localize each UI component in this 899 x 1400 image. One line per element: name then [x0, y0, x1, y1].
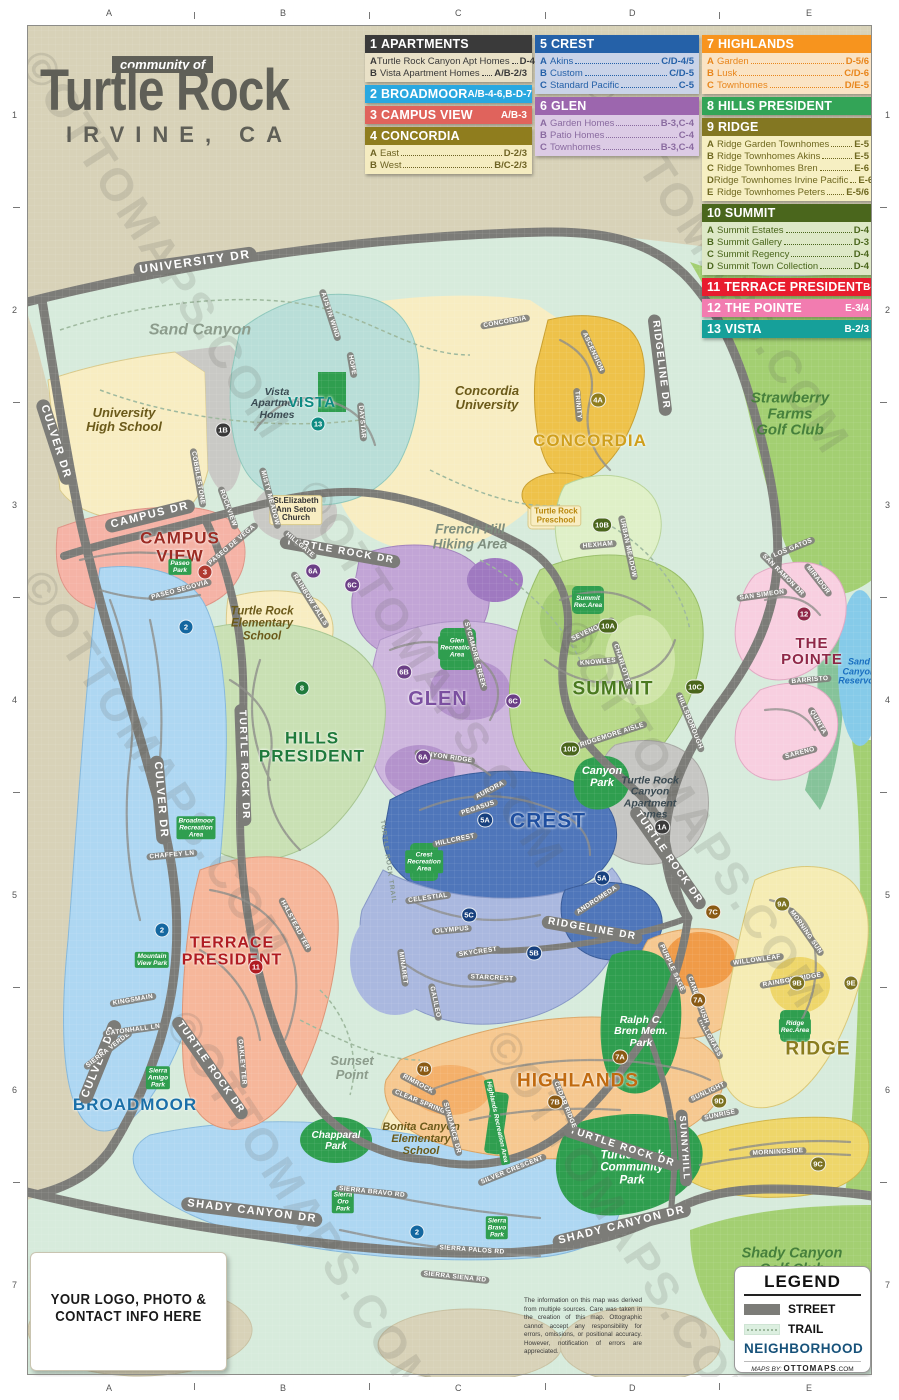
legend-item-patio-homes: BPatio HomesC-4 — [540, 130, 694, 141]
legend-group-name: CREST — [551, 37, 694, 51]
legend-item-key: C — [707, 249, 717, 260]
legend-group-name: VISTA — [725, 322, 845, 336]
legend-group-number: 4 — [370, 129, 377, 143]
legend-item-key: B — [707, 237, 717, 248]
legend-item-east: AEastD-2/3 — [370, 148, 527, 159]
legend-item-label: Ridge Townhomes Irvine Pacific — [714, 175, 848, 186]
legend-item-label: Ridge Townhomes Peters — [717, 187, 825, 198]
legend-item-leader — [827, 187, 844, 195]
grid-number-5-left: 5 — [12, 890, 17, 900]
legend-item-garden-homes: AGarden HomesB-3,C-4 — [540, 118, 694, 129]
legend-item-leader — [616, 118, 658, 126]
legend-item-leader — [482, 68, 493, 76]
legend-item-label: Garden — [717, 56, 749, 67]
legend-item-label: Standard Pacific — [550, 80, 619, 91]
grid-tick-top-1 — [194, 12, 195, 19]
legend-item-label: Turtle Rock Canyon Apt Homes — [377, 56, 510, 67]
legend-group-number: 6 — [540, 99, 547, 113]
legend-group-campus-view: 3CAMPUS VIEWA/B-3 — [365, 106, 532, 124]
legend-item-summit-estates: ASummit EstatesD-4 — [707, 225, 869, 236]
grid-tick-top-2 — [369, 12, 370, 19]
legend-item-ridge-townhomes-akins: BRidge Townhomes AkinsE-5 — [707, 151, 869, 162]
legend-group-name: SUMMIT — [725, 206, 869, 220]
legend-item-key: A — [370, 148, 380, 159]
legend-item-label: Townhomes — [550, 142, 601, 153]
legend-item-grid-ref: C/D-4/5 — [661, 56, 694, 67]
grid-tick-left-4 — [13, 792, 20, 793]
grid-number-3-right: 3 — [885, 500, 890, 510]
legend-item-lusk: BLuskC/D-6 — [707, 68, 869, 79]
legend-item-west: BWestB/C-2/3 — [370, 160, 527, 171]
legend-group-items-glen: AGarden HomesB-3,C-4BPatio HomesC-4CTown… — [535, 115, 699, 156]
legend-group-number: 2 — [370, 87, 377, 101]
legend-item-leader — [822, 151, 852, 159]
grid-number-1-left: 1 — [12, 110, 17, 120]
legend-group-broadmoor: 2BROADMOORA/B-4-6,B-D-7 — [365, 85, 532, 103]
legend-group-header-hills-president: 8HILLS PRESIDENT — [702, 97, 874, 115]
legend-group-name: CONCORDIA — [381, 129, 527, 143]
grid-tick-right-6 — [880, 1182, 887, 1183]
legend-item-leader — [575, 56, 659, 64]
legend-item-grid-ref: D-5/6 — [846, 56, 869, 67]
legend-item-leader — [603, 142, 659, 150]
legend-item-leader — [512, 56, 518, 64]
credit-name: OTTOMAPS — [784, 1364, 837, 1373]
legend-item-leader — [606, 130, 676, 138]
legend-item-grid-ref: C-4 — [679, 130, 694, 141]
grid-number-5-right: 5 — [885, 890, 890, 900]
credit-suffix: .COM — [837, 1366, 854, 1373]
legend-item-label: Summit Gallery — [717, 237, 782, 248]
grid-tick-bottom-4 — [719, 1383, 720, 1390]
legend-item-label: Vista Apartment Homes — [380, 68, 480, 79]
legend-item-leader — [770, 80, 843, 88]
legend-item-key: C — [707, 80, 717, 91]
legend-item-key: A — [707, 225, 717, 236]
legend-item-label: Ridge Townhomes Bren — [717, 163, 818, 174]
legend-item-townhomes: CTownhomesB-3,C-4 — [540, 142, 694, 153]
legend-item-leader — [791, 249, 851, 257]
legend-item-grid-ref: E-5/6 — [846, 187, 869, 198]
legend-item-key: A — [540, 56, 550, 67]
legend-item-grid-ref: E-6 — [858, 175, 873, 186]
legend-group-vista: 13VISTAB-2/3 — [702, 320, 874, 338]
legend-group-number: 8 — [707, 99, 714, 113]
legend-group-number: 10 — [707, 206, 721, 220]
legend-item-key: B — [707, 151, 717, 162]
legend-group-summit: 10SUMMITASummit EstatesD-4BSummit Galler… — [702, 204, 874, 275]
legend-item-grid-ref: D-3 — [854, 237, 869, 248]
legend-item-key: B — [540, 130, 550, 141]
legend-item-key: E — [707, 187, 717, 198]
legend-item-key: B — [370, 160, 380, 171]
grid-tick-right-1 — [880, 207, 887, 208]
map-key-trail-row: TRAIL — [744, 1322, 861, 1336]
legend-item-label: Summit Regency — [717, 249, 789, 260]
legend-group-name: GLEN — [551, 99, 694, 113]
legend-item-leader — [784, 237, 852, 245]
grid-tick-top-4 — [719, 12, 720, 19]
legend-item-leader — [751, 56, 844, 64]
grid-number-7-left: 7 — [12, 1280, 17, 1290]
grid-number-6-left: 6 — [12, 1085, 17, 1095]
frame-bottom — [0, 1377, 899, 1400]
legend-item-grid-ref: D-4 — [854, 225, 869, 236]
grid-letter-d-bottom: D — [629, 1383, 636, 1393]
legend-item-key: A — [370, 56, 377, 67]
legend-item-label: Summit Estates — [717, 225, 784, 236]
legend-group-header-highlands: 7HIGHLANDS — [702, 35, 874, 53]
legend-item-grid-ref: E-5 — [854, 139, 869, 150]
legend-group-glen: 6GLENAGarden HomesB-3,C-4BPatio HomesC-4… — [535, 97, 699, 156]
legend-item-grid-ref: C/D-6 — [844, 68, 869, 79]
legend-group-highlands: 7HIGHLANDSAGardenD-5/6BLuskC/D-6CTownhom… — [702, 35, 874, 94]
legend-item-leader — [850, 175, 856, 183]
legend-item-leader — [831, 139, 852, 147]
legend-group-name: HIGHLANDS — [718, 37, 869, 51]
legend-item-vista-apartment-homes: BVista Apartment HomesA/B-2/3 — [370, 68, 527, 79]
legend-item-label: Lusk — [717, 68, 737, 79]
grid-tick-right-3 — [880, 597, 887, 598]
street-swatch — [744, 1304, 780, 1315]
legend-group-header-crest: 5CREST — [535, 35, 699, 53]
grid-number-6-right: 6 — [885, 1085, 890, 1095]
legend-item-ridge-townhomes-irvine-pacific: DRidge Townhomes Irvine PacificE-6 — [707, 175, 869, 186]
legend-group-terrace-president: 11TERRACE PRESIDENTB-5 — [702, 278, 874, 296]
grid-tick-bottom-2 — [369, 1383, 370, 1390]
legend-column-3: 7HIGHLANDSAGardenD-5/6BLuskC/D-6CTownhom… — [702, 35, 874, 338]
neighborhood-label: NEIGHBORHOOD — [744, 1341, 861, 1356]
legend-item-leader — [621, 80, 677, 88]
legend-group-header-vista: 13VISTAB-2/3 — [702, 320, 874, 338]
map-title: community of Turtle Rock IRVINE, CA — [40, 48, 344, 148]
legend-group-locator: B-2/3 — [845, 324, 869, 335]
legend-item-key: C — [707, 163, 717, 174]
legend-item-leader — [403, 160, 492, 168]
grid-tick-left-6 — [13, 1182, 20, 1183]
legend-item-leader — [739, 68, 842, 76]
legend-item-grid-ref: D-4 — [854, 249, 869, 260]
page-subtitle: IRVINE, CA — [66, 122, 344, 148]
legend-column-2: 5CRESTAAkinsC/D-4/5BCustomC/D-5CStandard… — [535, 35, 699, 156]
legend-group-the-pointe: 12THE POINTEE-3/4 — [702, 299, 874, 317]
legend-item-ridge-garden-townhomes: ARidge Garden TownhomesE-5 — [707, 139, 869, 150]
legend-item-label: Ridge Garden Townhomes — [717, 139, 829, 150]
legend-group-number: 13 — [707, 322, 721, 336]
legend-item-grid-ref: E-6 — [854, 163, 869, 174]
grid-number-2-left: 2 — [12, 305, 17, 315]
grid-number-4-right: 4 — [885, 695, 890, 705]
legend-group-items-ridge: ARidge Garden TownhomesE-5BRidge Townhom… — [702, 136, 874, 201]
grid-letter-c-bottom: C — [455, 1383, 462, 1393]
legend-group-number: 5 — [540, 37, 547, 51]
legend-item-label: Akins — [550, 56, 573, 67]
legend-item-label: Summit Town Collection — [717, 261, 818, 272]
legend-item-key: D — [707, 261, 717, 272]
map-key-title: LEGEND — [744, 1272, 861, 1296]
map-page: ©OTTOMAPS.COM©OTTOMAPS.COM©OTTOMAPS.COM©… — [0, 0, 899, 1400]
legend-group-locator: A/B-3 — [501, 110, 527, 121]
legend-group-header-terrace-president: 11TERRACE PRESIDENTB-5 — [702, 278, 874, 296]
grid-letter-e-top: E — [806, 8, 812, 18]
legend-group-name: TERRACE PRESIDENT — [724, 280, 863, 294]
legend-group-locator: E-3/4 — [845, 303, 869, 314]
logo-placeholder-line2: CONTACT INFO HERE — [43, 1308, 215, 1325]
legend-group-number: 7 — [707, 37, 714, 51]
legend-item-key: A — [707, 139, 717, 150]
legend-item-key: C — [540, 142, 550, 153]
map-key-street-row: STREET — [744, 1302, 861, 1316]
grid-tick-left-5 — [13, 987, 20, 988]
legend-group-header-broadmoor: 2BROADMOORA/B-4-6,B-D-7 — [365, 85, 532, 103]
legend-item-key: C — [540, 80, 550, 91]
legend-group-crest: 5CRESTAAkinsC/D-4/5BCustomC/D-5CStandard… — [535, 35, 699, 94]
legend-column-1: 1APARTMENTSATurtle Rock Canyon Apt Homes… — [365, 35, 532, 174]
legend-group-header-summit: 10SUMMIT — [702, 204, 874, 222]
legend-group-header-the-pointe: 12THE POINTEE-3/4 — [702, 299, 874, 317]
legend-group-header-campus-view: 3CAMPUS VIEWA/B-3 — [365, 106, 532, 124]
legend-group-concordia: 4CONCORDIAAEastD-2/3BWestB/C-2/3 — [365, 127, 532, 174]
grid-tick-left-3 — [13, 597, 20, 598]
grid-letter-c-top: C — [455, 8, 462, 18]
street-label: STREET — [788, 1302, 835, 1316]
grid-tick-right-5 — [880, 987, 887, 988]
legend-item-label: Garden Homes — [550, 118, 614, 129]
legend-item-label: Ridge Townhomes Akins — [717, 151, 820, 162]
legend-item-turtle-rock-canyon-apt-homes: ATurtle Rock Canyon Apt HomesD-4/5 — [370, 56, 527, 67]
legend-item-ridge-townhomes-bren: CRidge Townhomes BrenE-6 — [707, 163, 869, 174]
trail-swatch — [744, 1324, 780, 1335]
legend-group-name: APARTMENTS — [381, 37, 527, 51]
grid-tick-bottom-1 — [194, 1383, 195, 1390]
legend-group-ridge: 9RIDGEARidge Garden TownhomesE-5BRidge T… — [702, 118, 874, 201]
legend-item-grid-ref: D-4 — [854, 261, 869, 272]
legend-group-items-apartments: ATurtle Rock Canyon Apt HomesD-4/5BVista… — [365, 53, 532, 82]
legend-item-standard-pacific: CStandard PacificC-5 — [540, 80, 694, 91]
legend-group-apartments: 1APARTMENTSATurtle Rock Canyon Apt Homes… — [365, 35, 532, 82]
legend-item-summit-regency: CSummit RegencyD-4 — [707, 249, 869, 260]
legend-group-number: 12 — [707, 301, 721, 315]
legend-item-leader — [401, 148, 502, 156]
legend-item-key: A — [707, 56, 717, 67]
legend-group-locator: A/B-4-6,B-D-7 — [467, 89, 531, 100]
legend-item-akins: AAkinsC/D-4/5 — [540, 56, 694, 67]
legend-item-grid-ref: D/E-5 — [845, 80, 869, 91]
logo-placeholder-box: YOUR LOGO, PHOTO & CONTACT INFO HERE — [30, 1252, 227, 1371]
legend-group-number: 3 — [370, 108, 377, 122]
legend-item-summit-gallery: BSummit GalleryD-3 — [707, 237, 869, 248]
legend-item-label: Custom — [550, 68, 583, 79]
legend-item-grid-ref: C-5 — [679, 80, 694, 91]
legend-item-leader — [820, 163, 853, 171]
grid-letter-d-top: D — [629, 8, 636, 18]
legend-group-header-apartments: 1APARTMENTS — [365, 35, 532, 53]
legend-item-ridge-townhomes-peters: ERidge Townhomes PetersE-5/6 — [707, 187, 869, 198]
legend-group-number: 1 — [370, 37, 377, 51]
grid-number-3-left: 3 — [12, 500, 17, 510]
legend-item-key: B — [707, 68, 717, 79]
legend-item-grid-ref: B-3,C-4 — [661, 118, 694, 129]
grid-tick-left-1 — [13, 207, 20, 208]
legend-item-townhomes: CTownhomesD/E-5 — [707, 80, 869, 91]
legend-group-name: CAMPUS VIEW — [381, 108, 501, 122]
map-credit: MAPS BY: OTTOMAPS.COM — [744, 1361, 861, 1373]
grid-letter-a-bottom: A — [106, 1383, 112, 1393]
legend-item-key: D — [707, 175, 714, 186]
legend-item-grid-ref: E-5 — [854, 151, 869, 162]
legend-item-leader — [786, 225, 852, 233]
grid-letter-b-bottom: B — [280, 1383, 286, 1393]
legend-group-number: 9 — [707, 120, 714, 134]
trail-label: TRAIL — [788, 1322, 823, 1336]
frame-top — [0, 0, 899, 25]
legend-group-name: HILLS PRESIDENT — [718, 99, 869, 113]
legend-item-garden: AGardenD-5/6 — [707, 56, 869, 67]
grid-tick-right-2 — [880, 402, 887, 403]
disclaimer-text: The information on this map was derived … — [524, 1297, 642, 1357]
grid-tick-left-2 — [13, 402, 20, 403]
legend-item-key: B — [540, 68, 550, 79]
legend-item-leader — [820, 261, 851, 269]
grid-number-1-right: 1 — [885, 110, 890, 120]
legend-item-grid-ref: C/D-5 — [669, 68, 694, 79]
legend-group-header-glen: 6GLEN — [535, 97, 699, 115]
legend-group-number: 11 — [707, 280, 720, 294]
legend-item-label: West — [380, 160, 401, 171]
legend-item-key: B — [370, 68, 380, 79]
legend-group-items-concordia: AEastD-2/3BWestB/C-2/3 — [365, 145, 532, 174]
legend-item-grid-ref: A/B-2/3 — [494, 68, 527, 79]
legend-item-key: A — [540, 118, 550, 129]
grid-tick-bottom-3 — [545, 1383, 546, 1390]
grid-letter-e-bottom: E — [806, 1383, 812, 1393]
legend-group-header-ridge: 9RIDGE — [702, 118, 874, 136]
legend-group-name: BROADMOOR — [381, 87, 468, 101]
legend-item-grid-ref: D-2/3 — [504, 148, 527, 159]
grid-number-2-right: 2 — [885, 305, 890, 315]
grid-tick-right-4 — [880, 792, 887, 793]
legend-group-items-summit: ASummit EstatesD-4BSummit GalleryD-3CSum… — [702, 222, 874, 275]
legend-item-grid-ref: B-3,C-4 — [661, 142, 694, 153]
grid-number-4-left: 4 — [12, 695, 17, 705]
credit-prefix: MAPS BY: — [751, 1366, 781, 1373]
legend-group-items-highlands: AGardenD-5/6BLuskC/D-6CTownhomesD/E-5 — [702, 53, 874, 94]
legend-item-leader — [585, 68, 667, 76]
grid-letter-a-top: A — [106, 8, 112, 18]
grid-letter-b-top: B — [280, 8, 286, 18]
legend-group-name: THE POINTE — [725, 301, 845, 315]
legend-item-label: East — [380, 148, 399, 159]
legend-item-summit-town-collection: DSummit Town CollectionD-4 — [707, 261, 869, 272]
page-title: Turtle Rock — [40, 48, 289, 120]
legend-item-label: Patio Homes — [550, 130, 604, 141]
legend-group-header-concordia: 4CONCORDIA — [365, 127, 532, 145]
logo-placeholder-line1: YOUR LOGO, PHOTO & — [43, 1291, 215, 1308]
legend-group-items-crest: AAkinsC/D-4/5BCustomC/D-5CStandard Pacif… — [535, 53, 699, 94]
legend-item-label: Townhomes — [717, 80, 768, 91]
legend-item-custom: BCustomC/D-5 — [540, 68, 694, 79]
legend-group-hills-president: 8HILLS PRESIDENT — [702, 97, 874, 115]
map-key-box: LEGEND STREET TRAIL NEIGHBORHOOD MAPS BY… — [734, 1266, 871, 1373]
grid-tick-top-3 — [545, 12, 546, 19]
legend-item-grid-ref: B/C-2/3 — [494, 160, 527, 171]
grid-number-7-right: 7 — [885, 1280, 890, 1290]
legend-group-name: RIDGE — [718, 120, 869, 134]
